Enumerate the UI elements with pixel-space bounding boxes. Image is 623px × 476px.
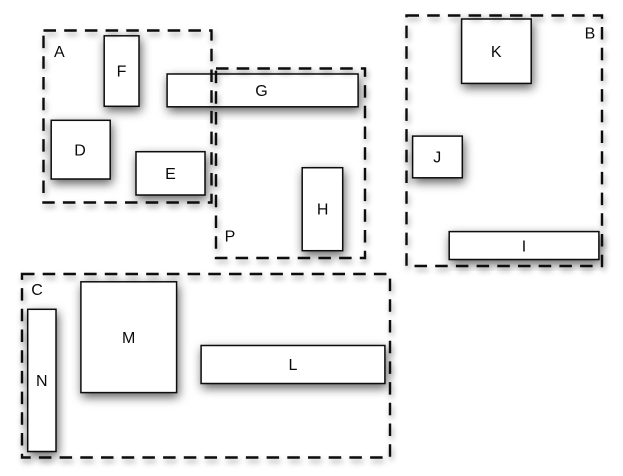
svg-text:G: G	[255, 83, 267, 100]
svg-text:F: F	[117, 64, 127, 81]
svg-text:K: K	[491, 44, 502, 61]
svg-text:B: B	[585, 25, 596, 42]
svg-text:C: C	[31, 282, 43, 299]
svg-text:I: I	[522, 238, 526, 255]
svg-text:N: N	[36, 373, 48, 390]
svg-text:E: E	[165, 166, 176, 183]
svg-text:J: J	[433, 150, 441, 167]
svg-text:H: H	[317, 202, 329, 219]
svg-text:L: L	[289, 357, 298, 374]
svg-text:M: M	[122, 330, 135, 347]
svg-text:P: P	[225, 229, 236, 246]
svg-text:D: D	[74, 142, 86, 159]
svg-text:A: A	[54, 44, 65, 61]
